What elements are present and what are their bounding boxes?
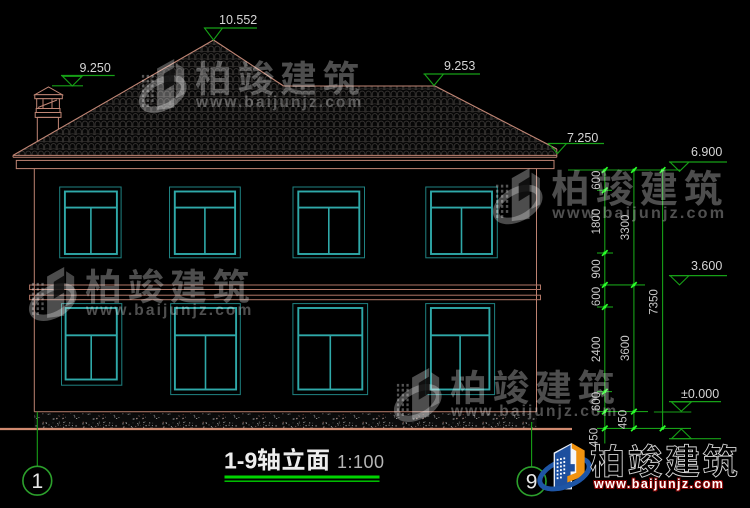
svg-text:±0.000: ±0.000 <box>681 387 719 401</box>
svg-text:9.250: 9.250 <box>80 61 111 75</box>
svg-text:10.552: 10.552 <box>219 13 257 27</box>
svg-text:600: 600 <box>591 287 603 306</box>
svg-text:3.600: 3.600 <box>691 259 722 273</box>
svg-text:www.baijunjz.com: www.baijunjz.com <box>593 477 724 491</box>
svg-text:450: 450 <box>618 410 630 429</box>
svg-text:6.900: 6.900 <box>691 145 722 159</box>
svg-text:1: 1 <box>31 470 43 493</box>
svg-text:1-9: 1-9 <box>224 448 257 474</box>
svg-text:9.253: 9.253 <box>444 59 475 73</box>
svg-text:3600: 3600 <box>620 335 632 361</box>
svg-text:2400: 2400 <box>591 337 603 363</box>
svg-text:9: 9 <box>526 471 538 494</box>
svg-text:7350: 7350 <box>649 289 661 315</box>
svg-text:900: 900 <box>591 259 603 278</box>
svg-text:1:100: 1:100 <box>337 452 385 472</box>
